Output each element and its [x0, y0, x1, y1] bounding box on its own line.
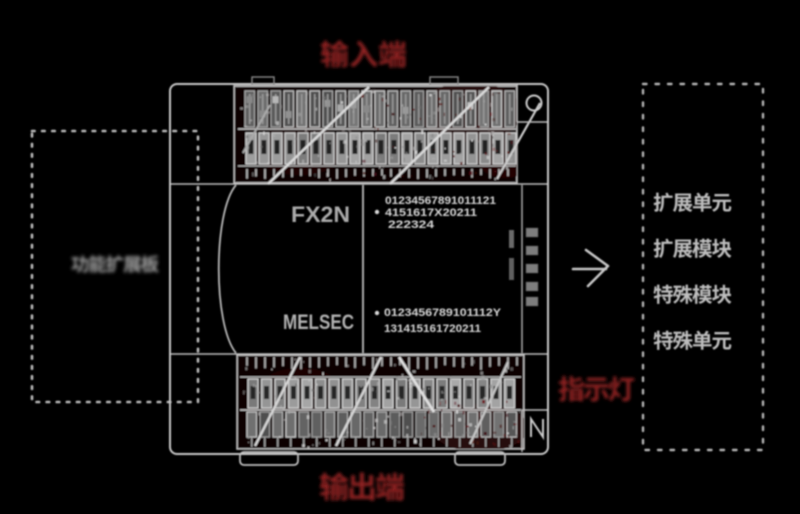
svg-text:0123456789101112Y: 0123456789101112Y [384, 307, 502, 319]
svg-text:MELSEC: MELSEC [283, 311, 354, 334]
svg-text:4151617X20211: 4151617X20211 [385, 207, 477, 219]
svg-text:131415161720211: 131415161720211 [384, 323, 481, 335]
svg-text:FX2N: FX2N [291, 202, 350, 227]
svg-text:222324: 222324 [388, 219, 435, 231]
svg-text:01234567891011121: 01234567891011121 [385, 195, 496, 207]
